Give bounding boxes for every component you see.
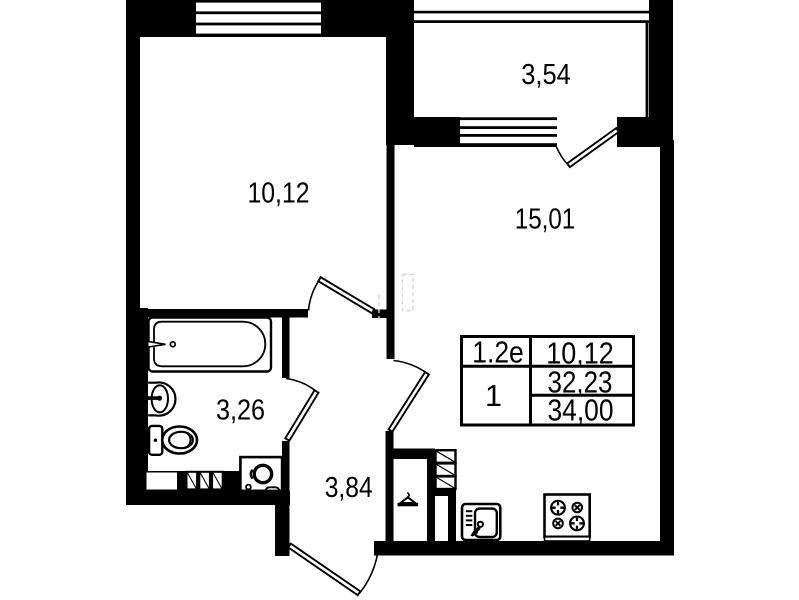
svg-text:3,84: 3,84 xyxy=(325,472,373,504)
svg-text:10,12: 10,12 xyxy=(248,178,310,210)
svg-text:1.2e: 1.2e xyxy=(472,335,524,369)
svg-text:15,01: 15,01 xyxy=(515,203,576,235)
svg-text:3,26: 3,26 xyxy=(216,395,265,427)
svg-text:34,00: 34,00 xyxy=(548,393,614,427)
svg-text:1: 1 xyxy=(485,379,502,413)
svg-text:3,54: 3,54 xyxy=(521,59,571,91)
